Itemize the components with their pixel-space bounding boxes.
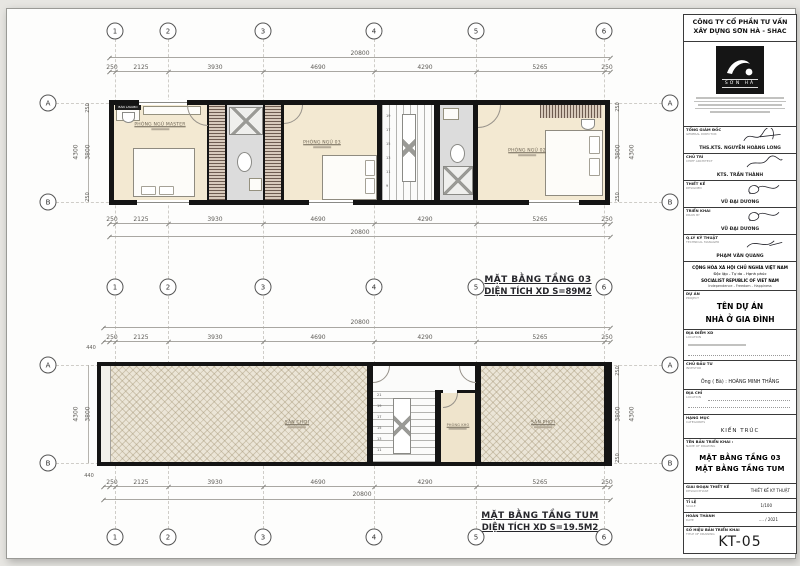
dim-seg: 4690 — [310, 216, 325, 223]
grid-bubble-rowA-left: A — [40, 95, 57, 112]
dim-seg: 250 — [106, 479, 117, 486]
dim-side: 4300 — [73, 144, 80, 159]
sonha-logo-icon — [723, 53, 757, 79]
dim-total: 20800 — [350, 319, 369, 326]
signer-name: PHẠM VĂN QUANG — [684, 254, 796, 259]
room-label-bed3: PHÒNG NGỦ 03 — [303, 140, 341, 148]
dim-seg: 5265 — [532, 64, 547, 71]
stair-step-number: 19 — [377, 404, 381, 408]
dim-line-total-tum-top — [103, 327, 610, 328]
grid-bubble-col5-bot: 5 — [468, 529, 485, 546]
dim-seg: 3930 — [207, 334, 222, 341]
stair-step-number: 17 — [377, 415, 381, 419]
signer-row-technical: Q.LÝ KỸ THUẬTTECHNICAL MANAGER PHẠM VĂN … — [684, 235, 796, 262]
dim-side: 250 — [85, 103, 91, 113]
stair-step-number: 19 — [386, 114, 390, 118]
dim-seg: 4690 — [310, 334, 325, 341]
grid-bubble-rowB-right-tum: B — [662, 455, 679, 472]
address-text-line — [696, 97, 784, 99]
dim-seg: 5265 — [532, 216, 547, 223]
room-label-bed2: PHÒNG NGỦ 02 — [508, 148, 546, 156]
stair-rail — [402, 114, 416, 182]
logo-text: SƠN HÀ — [722, 79, 758, 88]
project-name-line2: NHÀ Ở GIA ĐÌNH — [684, 315, 796, 324]
stair-step-number: 15 — [377, 426, 381, 430]
pillow — [159, 186, 174, 195]
dim-line-total-tum-bottom — [103, 499, 610, 500]
drawing-number-section: SỐ HIỆU BẢN TRIỂN KHAITITLE OF DRAWING K… — [684, 527, 796, 553]
edge-ledge — [101, 366, 111, 462]
pillow — [589, 158, 600, 176]
dim-seg: 3930 — [207, 64, 222, 71]
dim-seg: 250 — [106, 64, 117, 71]
toilet-icon — [237, 152, 252, 172]
republic-section: CỘNG HÒA XÃ HỘI CHỦ NGHĨA VIỆT NAM Độc l… — [684, 262, 796, 291]
investor-name: Ông ( Bà) : HOÀNG MINH THẮNG — [684, 380, 796, 385]
grid-bubble-col2: 2 — [160, 23, 177, 40]
window — [139, 100, 187, 105]
grid-bubble-col1-mid: 1 — [107, 279, 124, 296]
grid-bubble-col1-bot: 1 — [107, 529, 124, 546]
address-text-line — [710, 111, 770, 113]
grid-bubble-col4-mid: 4 — [366, 279, 383, 296]
stair-step-number: 13 — [386, 156, 390, 160]
grid-bubble-col6: 6 — [596, 23, 613, 40]
dim-seg: 250 — [106, 216, 117, 223]
title-block: CÔNG TY CỔ PHẦN TƯ VẤN XÂY DỰNG SƠN HÀ -… — [683, 14, 797, 554]
grid-bubble-rowA-left-tum: A — [40, 357, 57, 374]
dim-side: 250 — [615, 102, 621, 112]
stair-step-number: 21 — [377, 393, 381, 397]
sink-icon — [443, 108, 459, 120]
company-name-line2: XÂY DỰNG SƠN HÀ - SHAC — [684, 27, 796, 36]
dim-seg: 4690 — [310, 479, 325, 486]
stair-step-number: 17 — [386, 128, 390, 132]
sink-icon — [581, 119, 595, 130]
republic-line4: Independence - Freedom - Happiness — [684, 284, 796, 288]
signer-row-drawby: TRIỂN KHAIDRAW BY VŨ ĐẠI DƯƠNG — [684, 208, 796, 235]
dotted-line — [688, 407, 790, 408]
grid-bubble-col2-mid: 2 — [160, 279, 177, 296]
project-name-line1: TÊN DỰ ÁN — [684, 302, 796, 311]
dim-side: 3800 — [615, 406, 622, 421]
shower-box — [229, 107, 263, 135]
pillow — [141, 186, 156, 195]
dim-line-segments-top — [109, 71, 610, 72]
company-header: CÔNG TY CỔ PHẦN TƯ VẤN XÂY DỰNG SƠN HÀ -… — [684, 15, 796, 42]
dim-seg: 250 — [601, 334, 612, 341]
stair-step-number: 15 — [386, 142, 390, 146]
site-text-line — [688, 344, 746, 346]
dim-offset: 440 — [84, 473, 94, 479]
dim-seg: 3930 — [207, 216, 222, 223]
signature — [736, 128, 790, 144]
signer-row-chief: CHỦ TRÌCHIEF ARCHITECT KTS. TRẦN THÀNH — [684, 154, 796, 181]
dim-side: 3800 — [85, 144, 92, 159]
dim-side: 4300 — [629, 406, 636, 421]
republic-line1: CỘNG HÒA XÃ HỘI CHỦ NGHĨA VIỆT NAM — [684, 265, 796, 270]
scale-row: TỈ LỆSCALE 1/100 — [684, 499, 796, 513]
signer-row-designed: THIẾT KẾDESIGNED VŨ ĐẠI DƯƠNG — [684, 181, 796, 208]
date-value: .... / 2021 — [759, 517, 778, 522]
stair-step-number: 11 — [377, 448, 381, 452]
stair-rail — [393, 398, 411, 454]
company-logo-section: SƠN HÀ — [684, 42, 796, 127]
grid-bubble-col2-bot: 2 — [160, 529, 177, 546]
paper-sheet — [6, 8, 796, 559]
room-label-storage: PHÒNG KHO — [447, 423, 470, 430]
grid-bubble-rowB-left: B — [40, 194, 57, 211]
signer-name: THS.KTS. NGUYỄN HOÀNG LONG — [684, 146, 796, 151]
drawing-name-line1: MẶT BẰNG TẦNG 03 — [684, 454, 796, 462]
room-label-terrace-left: SÂN CHƠI — [285, 420, 309, 428]
dim-seg: 4690 — [310, 64, 325, 71]
site-section: ĐỊA ĐIỂM XDLOCATION — [684, 330, 796, 361]
dim-seg: 2125 — [133, 334, 148, 341]
wardrobe-strip — [209, 105, 225, 200]
dim-seg: 2125 — [133, 216, 148, 223]
pillow — [589, 136, 600, 154]
grid-bubble-rowA-right: A — [662, 95, 679, 112]
grid-bubble-col4: 4 — [366, 23, 383, 40]
dim-seg: 4290 — [417, 479, 432, 486]
company-logo: SƠN HÀ — [716, 46, 764, 94]
dim-line-total-bottom — [109, 236, 610, 237]
dim-seg: 2125 — [133, 479, 148, 486]
stair-step-number: 11 — [386, 170, 390, 174]
stair-step-number: 9 — [386, 184, 388, 188]
signature — [736, 182, 790, 198]
grid-bubble-col3: 3 — [255, 23, 272, 40]
pillow — [365, 160, 375, 176]
dim-seg: 250 — [601, 479, 612, 486]
stair-step-number: 13 — [377, 437, 381, 441]
dim-total: 20800 — [350, 229, 369, 236]
window — [137, 200, 189, 205]
dim-side: 4300 — [629, 144, 636, 159]
terrace-left — [111, 366, 367, 462]
room-label-master: PHÒNG NGỦ MASTER — [134, 122, 185, 130]
date-row: HOÀN THÀNHDATE .... / 2021 — [684, 513, 796, 527]
dim-seg: 250 — [601, 64, 612, 71]
shower-box — [443, 166, 473, 195]
dim-side: 250 — [615, 192, 621, 202]
room-label-terrace-right: SÂN PHƠI — [531, 420, 555, 428]
signer-name: VŨ ĐẠI DƯƠNG — [684, 227, 796, 232]
dim-seg: 250 — [106, 334, 117, 341]
address-text-line — [694, 101, 786, 103]
dim-side: 250 — [85, 192, 91, 202]
signature — [736, 155, 790, 171]
grid-bubble-rowB-left-tum: B — [40, 455, 57, 472]
window — [309, 200, 353, 205]
drawing-number: KT-05 — [684, 534, 796, 550]
project-section: DỰ ÁNPROJECT TÊN DỰ ÁN NHÀ Ở GIA ĐÌNH — [684, 291, 796, 330]
category-section: HẠNG MỤCCATEGORIES KIẾN TRÚC — [684, 415, 796, 439]
address-text-line — [695, 108, 785, 110]
dim-line-segments-tum-bottom — [103, 486, 610, 487]
dim-total: 20800 — [352, 491, 371, 498]
sink-icon — [249, 178, 262, 191]
drawing-name-section: TÊN BẢN TRIỂN KHAI :NAME OF DRAWING MẶT … — [684, 439, 796, 484]
pillow — [365, 178, 375, 194]
grid-bubble-col3-mid: 3 — [255, 279, 272, 296]
dim-line-segments-bottom — [109, 223, 610, 224]
grid-bubble-col6-bot: 6 — [596, 529, 613, 546]
grid-bubble-col5: 5 — [468, 23, 485, 40]
plan-title-text: MẶT BẰNG TẦNG TUM — [450, 511, 630, 521]
phase-row: GIAI ĐOẠN THIẾT KẾDESIGN PHASE THIẾT KẾ … — [684, 484, 796, 499]
grid-bubble-col4-bot: 4 — [366, 529, 383, 546]
dotted-line — [708, 400, 790, 401]
signer-name: KTS. TRẦN THÀNH — [684, 173, 796, 178]
dim-side: 250 — [615, 366, 621, 376]
dim-side: 3800 — [615, 144, 622, 159]
signature — [736, 209, 790, 225]
grid-bubble-col6-mid: 6 — [596, 279, 613, 296]
architectural-drawing-canvas: 1 2 3 4 5 6 1 2 3 4 5 6 1 2 3 4 5 6 A B … — [0, 0, 800, 566]
grid-bubble-col1: 1 — [107, 23, 124, 40]
dim-seg: 4290 — [417, 334, 432, 341]
dim-seg: 2125 — [133, 64, 148, 71]
signer-row-director: TỔNG GIÁM ĐỐCGENERAL DIRECTOR THS.KTS. N… — [684, 127, 796, 154]
grid-bubble-col5-mid: 5 — [468, 279, 485, 296]
scale-value: 1/100 — [760, 503, 772, 508]
signer-name: VŨ ĐẠI DƯƠNG — [684, 200, 796, 205]
signature — [736, 236, 790, 252]
republic-line2: Độc lập - Tự do - Hạnh phúc — [684, 271, 796, 276]
dim-seg: 4290 — [417, 64, 432, 71]
category-value: KIẾN TRÚC — [684, 428, 796, 434]
tum-building — [97, 362, 612, 466]
dotted-line — [688, 355, 790, 356]
dim-line-total-top — [109, 57, 610, 58]
address-section: ĐỊA CHỈLOCATION — [684, 390, 796, 415]
window — [529, 200, 579, 205]
dim-line-segments-tum-top — [103, 341, 610, 342]
terrace-right — [481, 366, 604, 462]
lavabo-tag: BÀN LAVABO — [115, 105, 141, 110]
toilet-icon — [450, 144, 465, 163]
dim-offset: 440 — [86, 345, 96, 351]
investor-section: CHỦ ĐẦU TƯINVESTOR Ông ( Bà) : HOÀNG MIN… — [684, 361, 796, 390]
dim-seg: 4290 — [417, 216, 432, 223]
address-text-line — [698, 104, 782, 106]
phase-value: THIẾT KẾ KỸ THUẬT — [751, 488, 790, 493]
grid-bubble-rowA-right-tum: A — [662, 357, 679, 374]
dim-seg: 5265 — [532, 334, 547, 341]
dim-seg: 250 — [601, 216, 612, 223]
dim-side: 4300 — [73, 406, 80, 421]
dim-side: 3800 — [85, 406, 92, 421]
dim-seg: 5265 — [532, 479, 547, 486]
republic-line3: SOCIALIST REPUBLIC OF VIET NAM — [684, 278, 796, 283]
wardrobe-strip-horizontal — [540, 105, 602, 118]
grid-bubble-col3-bot: 3 — [255, 529, 272, 546]
dim-seg: 3930 — [207, 479, 222, 486]
grid-bubble-rowB-right: B — [662, 194, 679, 211]
wardrobe-strip — [265, 105, 281, 200]
drawing-name-line2: MẶT BẰNG TẦNG TUM — [684, 465, 796, 473]
dim-total: 20800 — [350, 50, 369, 57]
sink-icon — [122, 112, 135, 123]
dim-side: 250 — [615, 453, 621, 463]
company-name-line1: CÔNG TY CỔ PHẦN TƯ VẤN — [684, 18, 796, 27]
